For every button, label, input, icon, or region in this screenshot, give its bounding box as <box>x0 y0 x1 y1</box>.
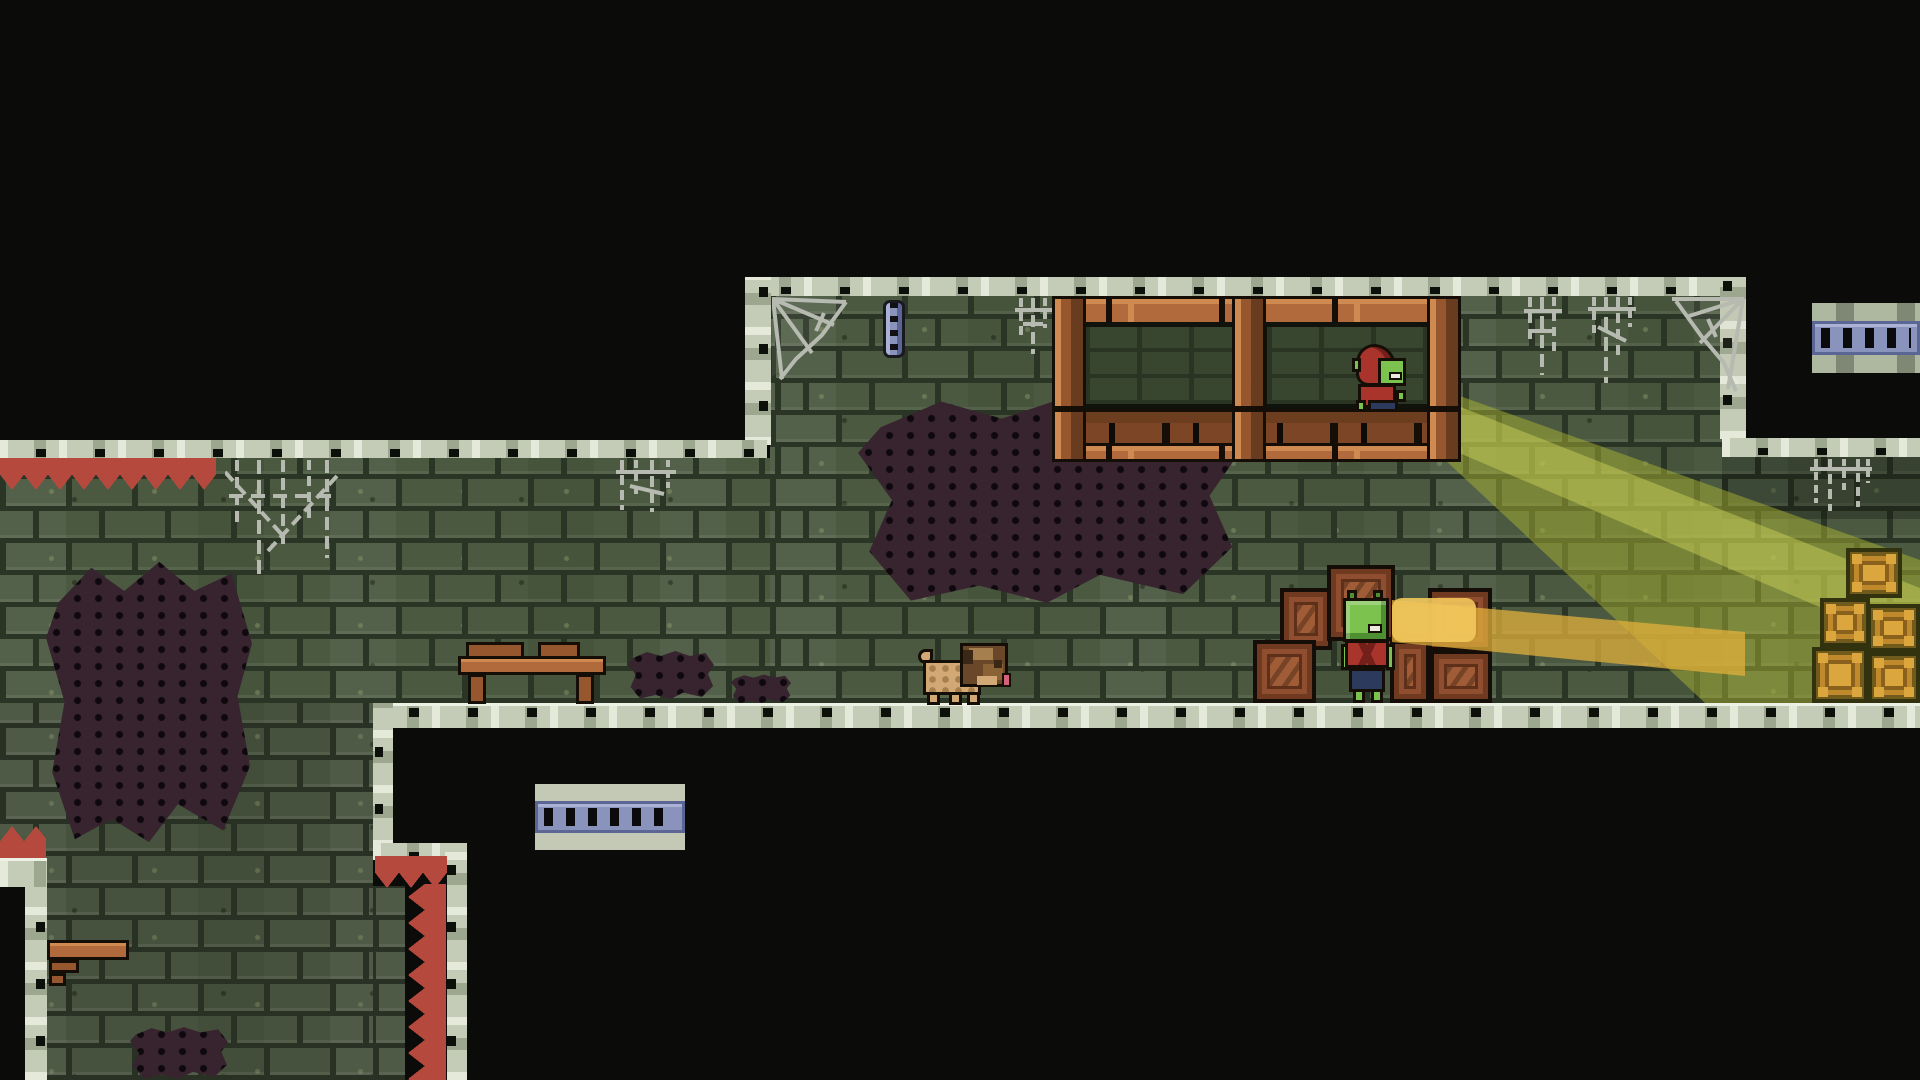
vent-stone-top <box>1812 303 1920 321</box>
gold-crate <box>1868 652 1920 703</box>
balcony-post <box>1427 296 1461 409</box>
table-leg <box>468 674 486 704</box>
balcony-post <box>1052 296 1086 409</box>
pug-tongue <box>1002 673 1011 687</box>
stone-border <box>0 440 767 458</box>
cobweb-icon <box>1806 459 1878 513</box>
balcony-window <box>1080 322 1244 409</box>
goblin-teeth <box>1389 372 1402 380</box>
wall-lower-left-ext <box>373 886 409 1080</box>
wooden-crate <box>1253 640 1316 703</box>
stone-border <box>745 277 1745 296</box>
chain-icon <box>883 300 905 358</box>
spikes-up-icon <box>0 826 46 858</box>
air-vent <box>535 784 685 850</box>
game-viewport[interactable] <box>0 0 1920 1080</box>
shelf-plank <box>47 940 129 960</box>
vent-grille-icon <box>1812 321 1920 355</box>
wooden-crate <box>1390 640 1430 703</box>
wooden-table <box>458 642 606 704</box>
vent-stone-bottom <box>535 833 685 850</box>
stone-border <box>0 858 47 887</box>
wall-shelf <box>47 940 129 993</box>
pug-nose <box>994 660 1002 668</box>
balcony-post <box>1232 409 1266 462</box>
gold-crate <box>1820 598 1870 647</box>
pug-jaw <box>977 676 997 685</box>
floor-stain <box>628 650 714 700</box>
shelf-bracket <box>49 960 79 973</box>
goblin-ear <box>1352 358 1361 372</box>
goblin-leg <box>1353 692 1365 703</box>
goblin-ground[interactable] <box>1341 590 1395 703</box>
stone-border <box>1722 438 1920 457</box>
stone-border <box>445 843 467 1080</box>
goblin-teeth <box>1368 624 1382 633</box>
shelf-bracket <box>49 973 66 986</box>
balcony-railing <box>1052 409 1455 462</box>
stone-floor <box>373 703 1920 728</box>
cobweb-icon <box>1522 297 1640 385</box>
gold-glow-hotspot <box>1392 598 1476 642</box>
vent-stone-top <box>535 784 685 801</box>
vent-grille-icon <box>535 801 685 833</box>
balcony-post <box>1052 409 1086 462</box>
vent-stone-bottom <box>1812 355 1920 373</box>
gold-crate <box>1867 604 1920 652</box>
pit <box>0 887 25 1080</box>
goblin-face <box>1378 358 1406 386</box>
gold-crate <box>1846 548 1902 598</box>
spikes-left-icon <box>408 884 446 1080</box>
pug-head <box>960 643 1008 687</box>
goblin-pants <box>1349 668 1385 692</box>
goblin-leg <box>1371 692 1383 703</box>
stone-border <box>373 703 393 848</box>
stone-border <box>25 858 47 1080</box>
wall-stain <box>46 556 252 848</box>
gold-crate <box>1812 647 1868 703</box>
air-vent <box>1812 303 1920 373</box>
cobweb-icon <box>1013 298 1057 356</box>
pug-ear <box>963 650 973 664</box>
spikes-down-icon <box>0 458 216 490</box>
cobweb-icon <box>612 460 682 514</box>
stone-border <box>745 277 771 445</box>
pug-dog[interactable] <box>918 643 1011 705</box>
floor-stain <box>731 674 791 704</box>
cobweb-icon <box>772 297 850 381</box>
balcony-post <box>1427 409 1461 462</box>
balcony-post <box>1232 296 1266 409</box>
wooden-crate <box>1430 650 1492 703</box>
cobweb-icon <box>225 460 339 582</box>
wall-stain <box>130 1026 228 1080</box>
cobweb-icon <box>1666 297 1745 395</box>
goblin-head <box>1343 598 1389 642</box>
goblin-shirt <box>1345 640 1389 668</box>
table-leg <box>576 674 594 704</box>
table-top <box>458 656 606 675</box>
goblin-hand <box>1396 390 1406 402</box>
